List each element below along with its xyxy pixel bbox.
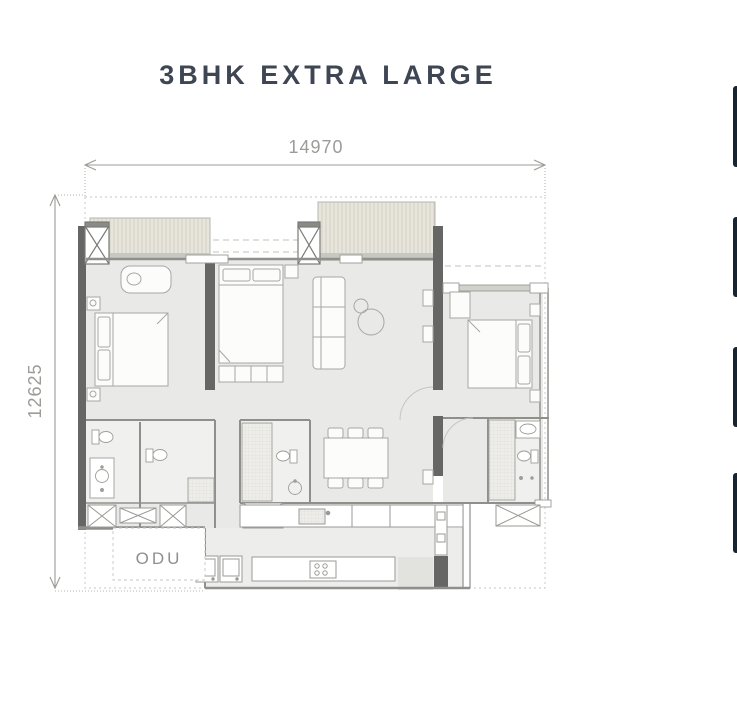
floor-plan: 3BHK EXTRA LARGE 14970 12625 [0, 0, 737, 703]
odu-label: ODU [136, 549, 183, 568]
dining-furniture [324, 428, 388, 488]
right-edge-card-stub-4[interactable] [733, 473, 737, 553]
right-edge-card-stub-2[interactable] [733, 217, 737, 297]
right-edge-card-stub-1[interactable] [733, 86, 737, 167]
odu-area: ODU [113, 528, 205, 580]
dimension-top-label: 14970 [288, 137, 343, 157]
tv-unit [423, 326, 433, 342]
balcony-center [318, 202, 435, 261]
hob [310, 561, 336, 578]
plan-title: 3BHK EXTRA LARGE [159, 60, 497, 90]
floor-plan-page: 3BHK EXTRA LARGE 14970 12625 [0, 0, 737, 703]
dimension-top [85, 160, 545, 198]
sofa [313, 277, 345, 369]
kitchen-sink [299, 509, 325, 524]
right-edge-card-stub-3[interactable] [733, 347, 737, 427]
dining-table [324, 438, 388, 478]
dimension-left-label: 12625 [25, 363, 45, 418]
